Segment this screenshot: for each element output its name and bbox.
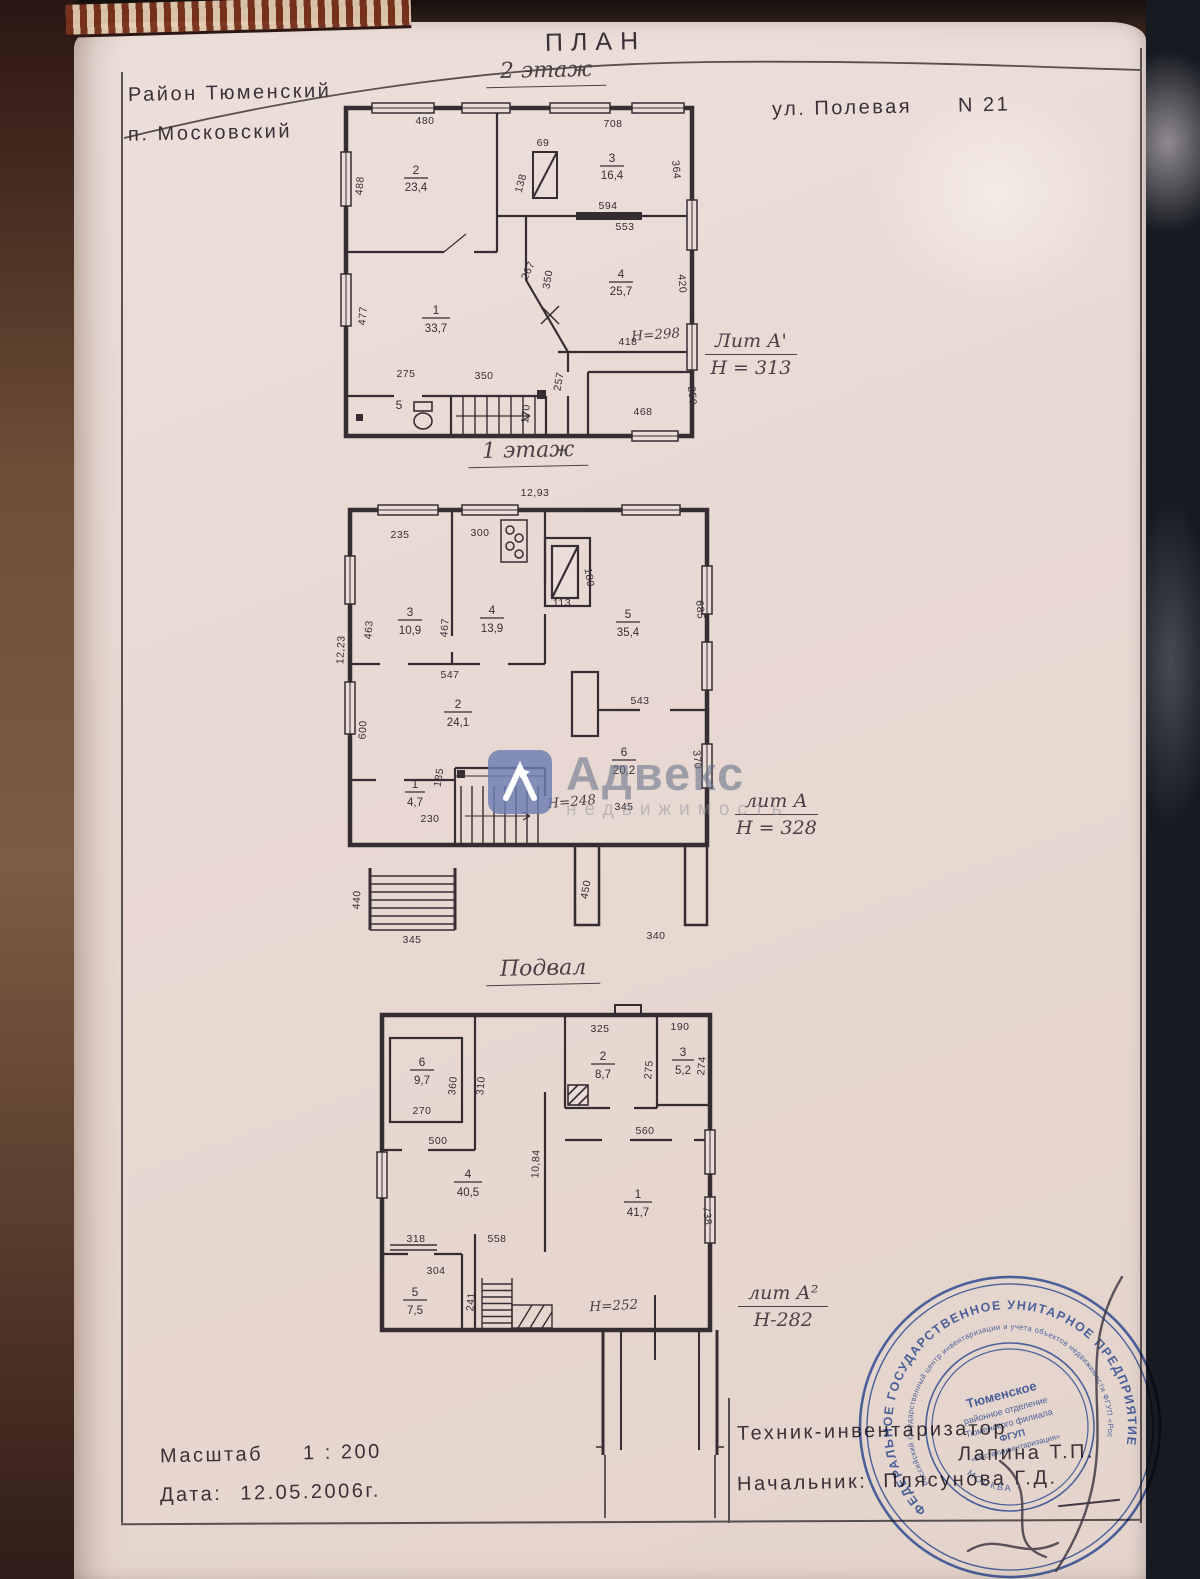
dim-label: 468 — [633, 406, 652, 418]
watermark: Адвекс недвижимость — [488, 750, 790, 821]
room-area: 35,4 — [617, 627, 640, 639]
floor2-bathroom-fixtures — [356, 402, 432, 429]
dim-label: 69 — [537, 137, 550, 149]
room-area: 41,7 — [627, 1207, 649, 1219]
basement-plan: 325 190 6 9,7 360 310 270 2 8,7 3 5,2 27… — [372, 1002, 724, 1522]
dim-label: 543 — [630, 695, 649, 707]
basement-liter: лит А² — [738, 1282, 828, 1307]
floor1-porch-stairs — [370, 845, 707, 930]
room-number: 5 — [412, 1285, 419, 1299]
dim-label: 190 — [670, 1021, 689, 1033]
dim-label: 12,93 — [521, 487, 550, 499]
room-number: 5 — [396, 398, 403, 412]
room-number: 5 — [625, 607, 632, 621]
dim-label: 270 — [412, 1105, 431, 1117]
room-area: 9,7 — [414, 1075, 430, 1087]
dim-label: 138 — [513, 172, 530, 193]
basement-height: Н-282 — [738, 1307, 828, 1331]
district-line1: Район Тюменский — [128, 80, 332, 107]
dim-label: 235 — [390, 529, 409, 541]
room-area: 8,7 — [595, 1069, 611, 1081]
floor2-liter-block: Лит А' Н = 313 — [705, 330, 797, 379]
district-line2: п. Московский — [128, 120, 292, 146]
background-left-edge — [0, 0, 76, 1579]
frame-left-line — [121, 72, 123, 1523]
dim-label: 600 — [357, 720, 370, 740]
dim-label: 560 — [635, 1125, 654, 1137]
dim-label: 318 — [406, 1233, 425, 1245]
dim-label: 418 — [618, 336, 637, 348]
date-label: Дата: — [160, 1483, 223, 1507]
room-number: 4 — [618, 267, 625, 281]
room-number: 6 — [419, 1055, 426, 1069]
room-area: 5,2 — [675, 1065, 691, 1077]
scanned-floor-plan-photo: ПЛАН 2 этаж Район Тюменский п. Московски… — [0, 0, 1200, 1579]
basement-labels: 325 190 6 9,7 360 310 270 2 8,7 3 5,2 27… — [403, 1021, 714, 1317]
house-a-glyph — [498, 760, 542, 804]
watermark-sub: недвижимость — [566, 799, 790, 821]
room-area: 16,4 — [601, 170, 624, 182]
floor2-labels: 480 708 488 69 138 364 594 553 2 23,4 3 … — [353, 115, 699, 424]
address-street: ул. Полевая — [772, 96, 913, 122]
address-house: N 21 — [958, 94, 1011, 118]
dim-label: 558 — [487, 1233, 506, 1245]
signature-strokes — [850, 1255, 1190, 1579]
dim-label: 594 — [598, 200, 617, 212]
room-area: 24,1 — [447, 717, 469, 729]
dim-label: 440 — [351, 890, 364, 910]
room-area: 25,7 — [610, 286, 632, 298]
room-number: 4 — [489, 603, 496, 617]
floor2-plan: 480 708 488 69 138 364 594 553 2 23,4 3 … — [336, 94, 706, 450]
room-area: 40,5 — [457, 1187, 479, 1199]
room-area: 33,7 — [425, 323, 447, 335]
dim-label: 708 — [603, 118, 622, 130]
room-number: 3 — [609, 151, 616, 165]
floor2-windows — [341, 103, 697, 441]
scale-row: Масштаб 1 : 200 — [160, 1441, 382, 1469]
floor2-liter: Лит А' — [705, 330, 797, 355]
dim-label: 500 — [428, 1135, 447, 1147]
room-number: 1 — [412, 777, 419, 791]
dim-label: 250 — [685, 386, 699, 406]
room-number: 2 — [413, 163, 420, 177]
basement-liter-block: лит А² Н-282 — [738, 1282, 828, 1331]
floor1-labels: 12,93 12,23 235 300 463 467 3 10,9 4 13,… — [334, 487, 707, 946]
dim-label: 350 — [474, 370, 493, 382]
dim-label: 185 — [431, 767, 446, 788]
room-number: 2 — [455, 697, 462, 711]
floor2-label: 2 этаж — [486, 57, 607, 89]
floor2-height: Н = 313 — [705, 355, 797, 379]
basement-walls — [382, 1005, 724, 1518]
dim-label: 230 — [420, 813, 439, 825]
dim-label: 480 — [415, 115, 434, 127]
dim-label: 180 — [581, 567, 596, 588]
room-number: 1 — [635, 1187, 642, 1201]
dim-label: 547 — [440, 669, 459, 681]
floor2-walls — [346, 108, 692, 436]
dim-label: 350 — [540, 269, 555, 290]
dim-label: 738 — [700, 1206, 714, 1226]
dim-label: 304 — [426, 1265, 445, 1277]
room-number: 2 — [600, 1049, 607, 1063]
watermark-text: Адвекс недвижимость — [566, 750, 790, 821]
scale-label: Масштаб — [160, 1443, 264, 1468]
basement-entry-shaft — [596, 1330, 724, 1518]
room-number: 4 — [465, 1167, 472, 1181]
dim-label: 257 — [551, 371, 566, 392]
dim-label: 12,23 — [334, 635, 347, 664]
dim-label: 463 — [362, 620, 376, 640]
dim-label: 310 — [474, 1076, 488, 1096]
dim-label: 420 — [675, 274, 689, 294]
height-note: Н=252 — [588, 1297, 639, 1316]
date-row: Дата: 12.05.2006г. — [160, 1480, 381, 1508]
room-number: 1 — [433, 303, 440, 317]
scale-value: 1 : 200 — [303, 1441, 382, 1466]
floor1-stove-icon — [501, 520, 527, 562]
dim-label: 364 — [669, 160, 683, 180]
floor1-plan: 12,93 12,23 235 300 463 467 3 10,9 4 13,… — [340, 486, 720, 948]
room-area: 23,4 — [405, 182, 428, 194]
floor1-windows — [345, 505, 712, 788]
basement-label: Подвал — [486, 955, 601, 986]
room-area: 10,9 — [399, 625, 421, 637]
basement-stairs — [482, 1278, 552, 1328]
dim-label: 267 — [519, 260, 538, 282]
dim-label: 345 — [402, 934, 421, 946]
dim-label: 300 — [470, 527, 489, 539]
dim-label: 553 — [615, 221, 634, 233]
room-area: 4,7 — [407, 797, 423, 809]
watermark-brand: Адвекс — [566, 750, 790, 797]
room-area: 13,9 — [481, 623, 503, 635]
room-number: 3 — [680, 1045, 687, 1059]
room-area: 7,5 — [407, 1305, 423, 1317]
dim-label: 488 — [353, 176, 367, 196]
date-value: 12.05.2006г. — [240, 1480, 381, 1506]
room-number: 3 — [407, 605, 414, 619]
dim-label: 477 — [356, 306, 370, 326]
dim-label: 275 — [642, 1060, 656, 1080]
dim-label: 325 — [590, 1023, 609, 1035]
dim-label: 450 — [578, 879, 593, 900]
dim-label: 241 — [464, 1292, 478, 1312]
dim-label: 275 — [396, 368, 415, 380]
footer-divider-line — [728, 1398, 730, 1523]
dim-label: 170 — [519, 404, 533, 424]
advecs-logo-icon — [488, 750, 552, 814]
dim-label: 685 — [693, 600, 707, 620]
floor1-label: 1 этаж — [468, 437, 589, 469]
dim-label: 467 — [438, 618, 452, 638]
dim-label: 113 — [553, 597, 571, 609]
dim-label: 10,84 — [529, 1149, 542, 1178]
dim-label: 360 — [446, 1076, 460, 1096]
page-title: ПЛАН — [545, 27, 647, 58]
dim-label: 274 — [695, 1056, 709, 1076]
dim-label: 340 — [646, 930, 665, 942]
